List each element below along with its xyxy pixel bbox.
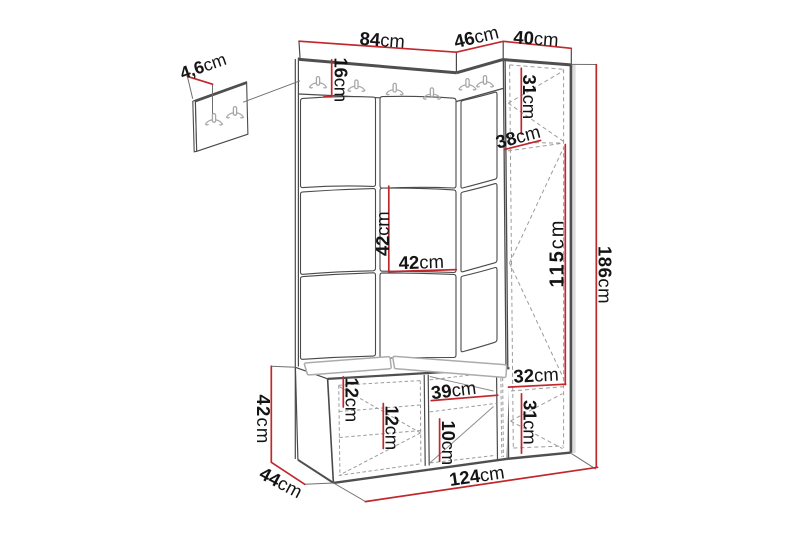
- svg-text:32cm: 32cm: [513, 363, 559, 386]
- svg-text:84cm: 84cm: [359, 28, 406, 52]
- svg-text:42cm: 42cm: [372, 212, 393, 256]
- svg-text:115cm: 115cm: [547, 219, 569, 288]
- svg-text:31cm: 31cm: [520, 400, 541, 444]
- svg-text:16cm: 16cm: [330, 58, 351, 102]
- svg-text:10cm: 10cm: [438, 421, 459, 465]
- svg-text:12cm: 12cm: [381, 406, 402, 450]
- svg-text:42cm: 42cm: [398, 251, 444, 274]
- svg-text:12cm: 12cm: [341, 378, 362, 422]
- svg-text:186cm: 186cm: [594, 246, 615, 304]
- svg-text:31cm: 31cm: [519, 75, 540, 119]
- svg-text:40cm: 40cm: [513, 26, 560, 50]
- svg-text:42cm: 42cm: [253, 395, 274, 445]
